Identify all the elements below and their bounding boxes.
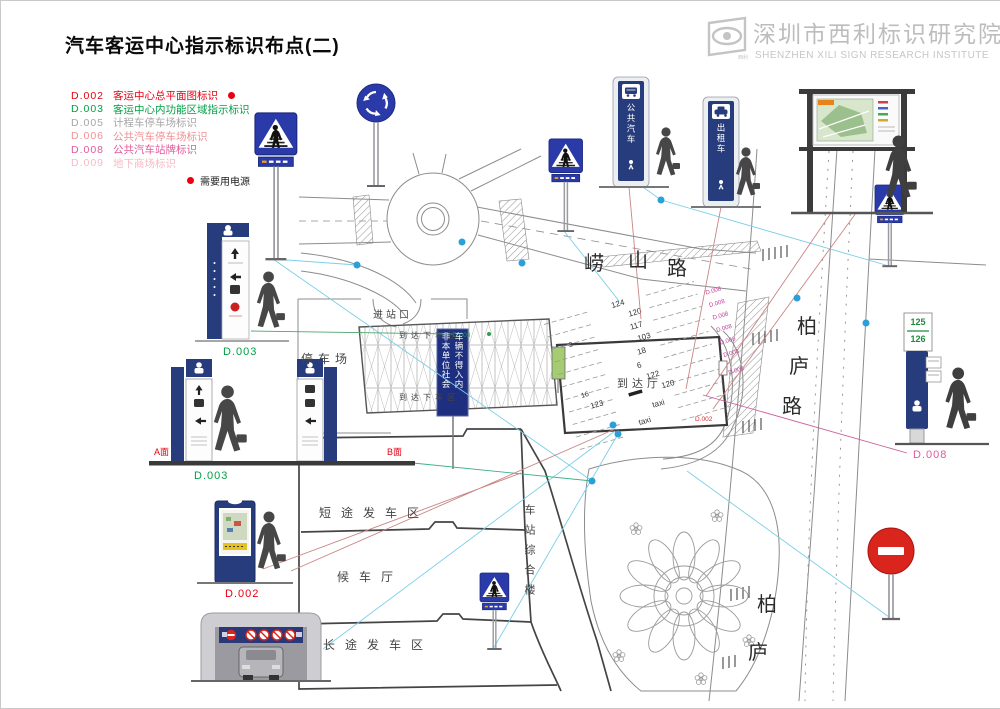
map-marker-d002: D.002 — [695, 416, 713, 423]
person-silhouette — [214, 386, 247, 452]
label-short-depart: 短途发车区 — [319, 507, 429, 519]
red-dot-icon — [231, 303, 240, 312]
label-parking: 停车场 — [301, 353, 352, 365]
person-silhouette — [945, 368, 976, 430]
legend-item: D.006 公共汽车停车场标识 — [71, 130, 250, 144]
brand-name-en: SHENZHEN XILI SIGN RESEARCH INSTITUTE — [755, 51, 989, 61]
map-logo-chip — [818, 100, 834, 105]
legend-code: D.003 — [71, 103, 113, 115]
sign-label-side-a: A面 — [154, 448, 169, 457]
roundabout-sign — [357, 84, 395, 186]
crossing-sign-4 — [480, 573, 509, 649]
legend-item: D.002 客运中心总平面图标识 — [71, 89, 250, 103]
car-front — [239, 647, 283, 680]
legend-item: D.009 地下商场标识 — [71, 157, 250, 171]
person-silhouette — [257, 271, 285, 327]
taxi-pylon-text: 出租车 — [715, 123, 727, 173]
brand-name-cn: 深圳市西利标识研究院 — [753, 23, 1000, 46]
no-entry-sign — [868, 528, 914, 619]
brand-logo-caption: 西利 — [738, 56, 748, 61]
sign-label-d003-2: D.003 — [194, 471, 228, 482]
notice-col1: 非本单位社会 — [439, 332, 452, 414]
sign-label-side-b: B面 — [387, 448, 402, 457]
label-arrival-hall: 到达厅 — [617, 379, 662, 390]
label-entrance: 进站口 — [373, 311, 412, 321]
crossing-sign-2 — [549, 139, 582, 231]
notice-col2: 车辆不得入内 — [452, 332, 465, 414]
bay-marker-d008: D.008 — [705, 286, 723, 296]
legend-item: D.005 计程车停车场标识 — [71, 116, 250, 130]
legend-item: D.008 公共汽车站牌标识 — [71, 143, 250, 157]
busstop-route-1: 125 — [904, 317, 932, 327]
crossing-sign-3 — [875, 185, 905, 266]
buildings — [299, 319, 779, 691]
bay-marker-d008: D.008 — [709, 299, 727, 309]
power-note: 需要用电源 — [187, 173, 250, 188]
legend-code: D.008 — [71, 144, 113, 156]
busstop-route-2: 126 — [904, 334, 932, 344]
legend-code: D.005 — [71, 117, 113, 129]
road-name-bailu: 庐 — [789, 357, 809, 377]
bay-marker-d008: D.008 — [712, 311, 730, 321]
bay-number: 117 — [629, 319, 644, 331]
power-dot-icon — [228, 92, 235, 99]
garage-entrance — [191, 613, 331, 681]
sign-label-d003-1: D.003 — [223, 347, 257, 358]
label-station-complex: 车站综合楼 — [523, 504, 534, 654]
power-note-text: 需要用电源 — [200, 173, 250, 188]
label-waiting-hall: 候车厅 — [337, 571, 403, 583]
sign-label-d008: D.008 — [913, 450, 947, 461]
legend: D.002 客运中心总平面图标识 D.003 客运中心内功能区域指示标识 D.0… — [71, 89, 250, 170]
road-name-laoshan: 崂 — [584, 254, 604, 274]
road-name-bailu-2: 柏 — [757, 595, 777, 615]
flower-pattern — [620, 532, 748, 660]
legend-code: D.009 — [71, 157, 113, 169]
d008-busstop-sign — [895, 313, 989, 444]
sign-label-d002: D.002 — [225, 589, 259, 600]
brand-logo — [709, 18, 745, 55]
legend-code: D.002 — [71, 90, 113, 102]
legend-code: D.006 — [71, 130, 113, 142]
person-silhouette — [257, 511, 286, 569]
bus-pylon-text: 公共汽车 — [625, 103, 637, 161]
notice-board-text: 非本单位社会 车辆不得入内 — [439, 332, 467, 414]
road-name-bailu-2: 庐 — [748, 643, 768, 663]
road-name-bailu: 柏 — [797, 317, 817, 337]
page-title: 汽车客运中心指示标识布点(二) — [65, 37, 340, 56]
road-name-laoshan: 路 — [667, 259, 687, 279]
crossing-sign-1 — [255, 113, 297, 259]
legend-label: 地下商场标识 — [113, 156, 176, 171]
road-name-bailu: 路 — [782, 397, 802, 417]
person-silhouette — [656, 127, 680, 175]
power-dot-icon — [187, 177, 194, 184]
legend-item: D.003 客运中心内功能区域指示标识 — [71, 103, 250, 117]
site-map-board — [791, 89, 933, 213]
road-name-laoshan: 山 — [628, 251, 648, 271]
label-long-depart: 长途发车区 — [323, 639, 433, 651]
plan-sheet: 124 120 117 3 103 18 6 16 122 123 120 ta… — [0, 0, 1000, 709]
